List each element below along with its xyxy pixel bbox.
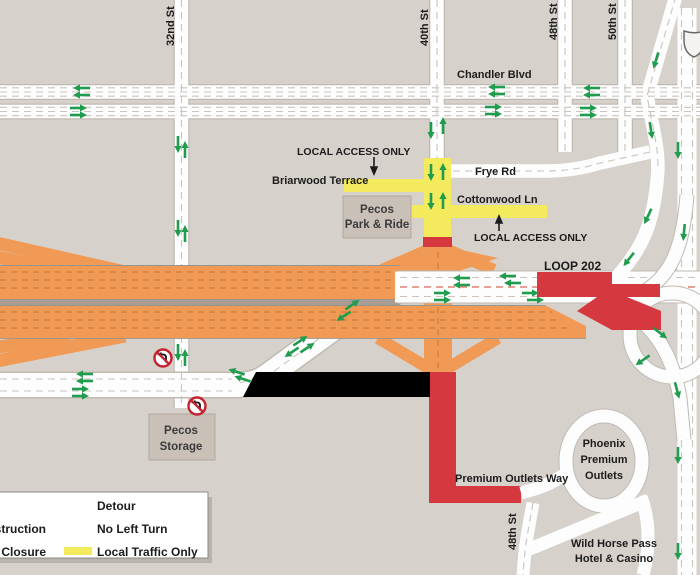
label-wild-horse-pass-1: Wild Horse Pass [571,538,657,550]
40th-yellow [424,158,451,237]
legend-closure-partial: Closure [1,545,46,559]
label-chandler-blvd: Chandler Blvd [457,69,532,81]
legend: struction Closure Detour No Left Turn Lo… [0,492,212,563]
label-48th-st-bottom: 48th St [507,513,519,550]
no-left-turn-icon [189,398,206,415]
label-pecos-storage-1: Pecos [164,425,198,437]
pecos-storage-box [149,414,215,460]
40th-red-closure [423,237,452,247]
label-local-access-top: LOCAL ACCESS ONLY [297,146,410,158]
detour-map-canvas: 32nd St 40th St 48th St 50th St 48th St … [0,0,700,575]
label-phoenix-premium-outlets-1: Phoenix [583,438,627,450]
label-phoenix-premium-outlets-2: Premium [580,454,627,466]
legend-construction-partial: struction [0,522,46,536]
legend-no-left-turn-label: No Left Turn [97,522,167,536]
label-pecos-storage-2: Storage [160,441,203,453]
loop202-eb-construction [0,305,586,338]
legend-local-traffic-label: Local Traffic Only [97,545,198,559]
detour-map: 32nd St 40th St 48th St 50th St 48th St … [0,0,700,575]
label-local-access-bottom: LOCAL ACCESS ONLY [474,232,587,244]
label-48th-st: 48th St [548,3,560,40]
legend-yellow-swatch [64,547,92,555]
label-loop-202: LOOP 202 [544,259,601,273]
legend-detour-label: Detour [97,499,136,513]
no-left-turn-icon [155,350,172,367]
label-wild-horse-pass-2: Hotel & Casino [575,553,654,565]
pecos-park-ride-box [343,196,411,238]
label-40th-st: 40th St [419,9,431,46]
label-phoenix-premium-outlets-3: Outlets [585,470,623,482]
label-pecos-park-ride-2: Park & Ride [345,219,410,231]
label-premium-outlets-way: Premium Outlets Way [455,473,569,485]
pecos-rd-closure-black [243,372,430,397]
label-frye-rd: Frye Rd [475,166,516,178]
label-32nd-st: 32nd St [165,6,177,46]
label-pecos-park-ride-1: Pecos [360,204,394,216]
label-50th-st: 50th St [607,3,619,40]
label-cottonwood-ln: Cottonwood Ln [457,194,538,206]
label-briarwood-terrace: Briarwood Terrace [272,175,368,187]
